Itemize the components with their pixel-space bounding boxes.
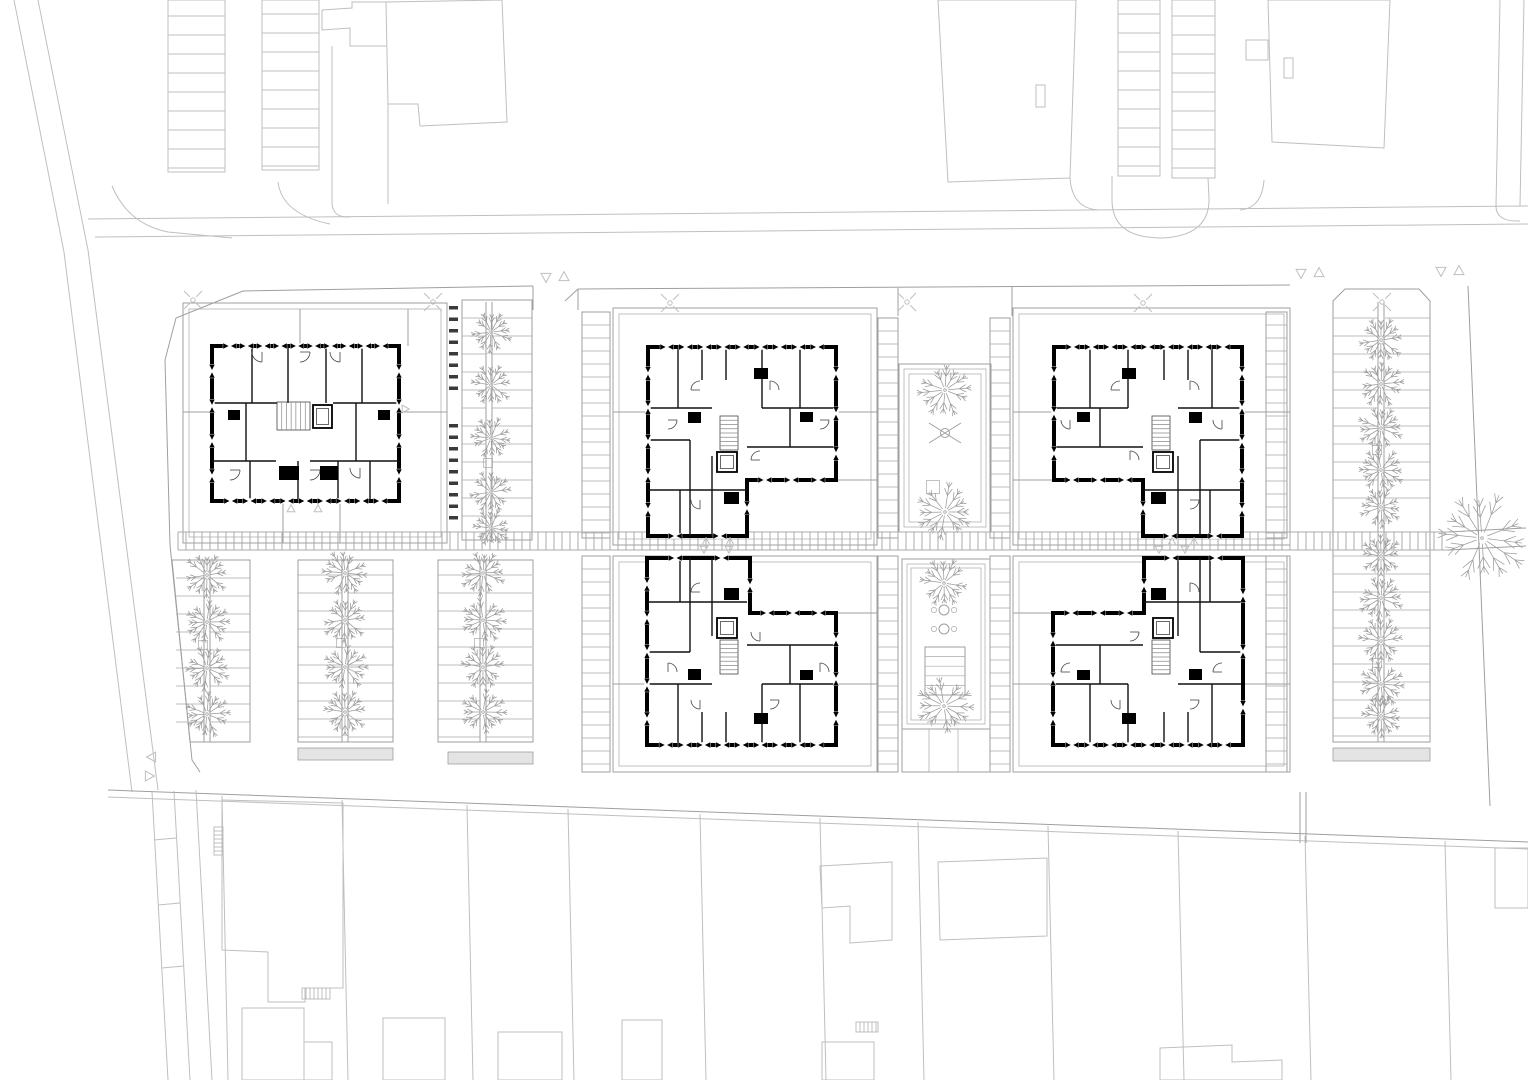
building-center-north: [645, 344, 838, 538]
site-plan-svg: [0, 0, 1528, 1080]
building-west: [209, 343, 401, 503]
site-plan-drawing: [0, 0, 1528, 1080]
building-east-north: [1051, 344, 1244, 538]
building-center-south: [644, 555, 838, 747]
context-south: [108, 790, 1528, 1080]
building-east-south: [1050, 555, 1245, 747]
